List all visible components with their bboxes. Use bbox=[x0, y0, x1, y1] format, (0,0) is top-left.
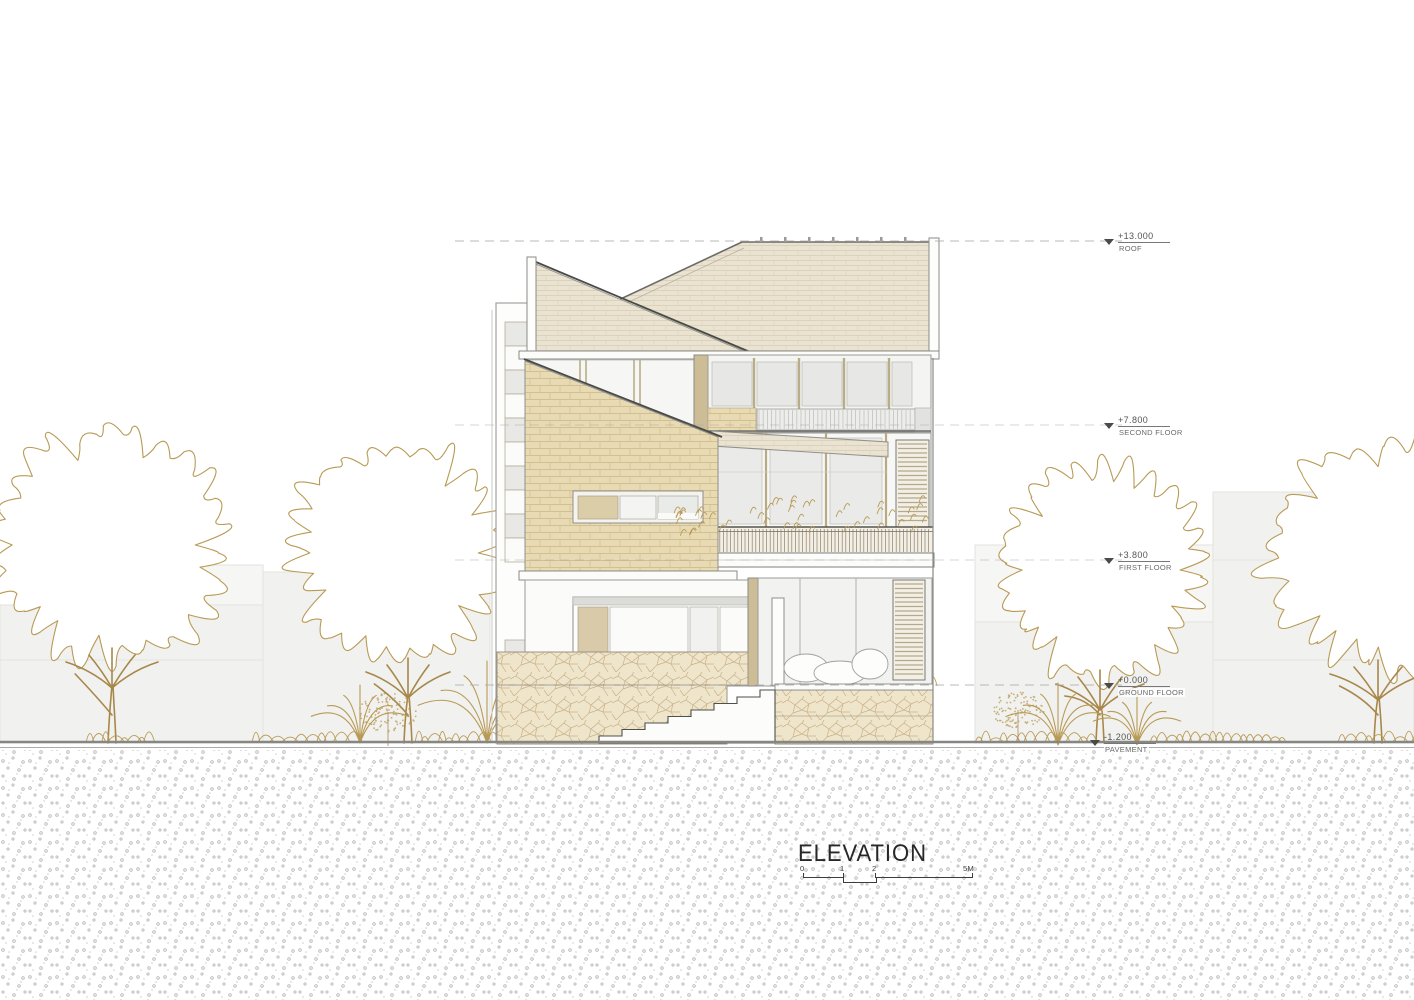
brick-window bbox=[573, 491, 703, 523]
level-value: +0.000 bbox=[1118, 675, 1170, 687]
level-marker-roof: +13.000 ROOF bbox=[1104, 231, 1194, 255]
first-floor-glazing bbox=[708, 431, 931, 528]
level-triangle-icon bbox=[1104, 239, 1114, 245]
level-marker-first-floor: +3.800 FIRST FLOOR bbox=[1104, 550, 1194, 574]
level-triangle-icon bbox=[1090, 740, 1100, 746]
elevation-sheet: +13.000 ROOF +7.800 SECOND FLOOR +3.800 … bbox=[0, 0, 1414, 1000]
level-marker-ground-floor: +0.000 GROUND FLOOR bbox=[1104, 675, 1194, 699]
clerestory-band bbox=[708, 355, 931, 432]
house-elevation bbox=[492, 237, 939, 744]
level-name: GROUND FLOOR bbox=[1118, 688, 1185, 697]
louver-screen-lower bbox=[893, 580, 925, 680]
level-triangle-icon bbox=[1104, 558, 1114, 564]
scale-bar-segment bbox=[875, 877, 972, 878]
pavement-stipple bbox=[0, 750, 1414, 1000]
level-name: PAVEMENT bbox=[1104, 745, 1149, 754]
balcony bbox=[686, 527, 934, 567]
level-triangle-icon bbox=[1104, 423, 1114, 429]
scale-tick-1: 1 bbox=[840, 864, 844, 873]
scale-bar-segment bbox=[803, 877, 843, 878]
scale-tick-0: 0 bbox=[800, 864, 804, 873]
ground-window bbox=[573, 597, 757, 657]
scale-bar-segment-drop bbox=[843, 877, 877, 883]
scale-tick-5m: 5M bbox=[963, 864, 974, 873]
elevation-drawing bbox=[0, 0, 1414, 1000]
level-value: -1.200 bbox=[1104, 732, 1156, 744]
scale-tick-2: 2 bbox=[872, 864, 876, 873]
level-name: SECOND FLOOR bbox=[1118, 428, 1184, 437]
level-marker-pavement: -1.200 PAVEMENT bbox=[1090, 732, 1180, 756]
level-name: FIRST FLOOR bbox=[1118, 563, 1173, 572]
level-marker-second-floor: +7.800 SECOND FLOOR bbox=[1104, 415, 1194, 439]
level-value: +3.800 bbox=[1118, 550, 1170, 562]
level-value: +7.800 bbox=[1118, 415, 1170, 427]
title-block: ELEVATION 0 1 2 5M bbox=[798, 840, 1018, 868]
level-triangle-icon bbox=[1104, 683, 1114, 689]
ground-and-pavement bbox=[0, 742, 1414, 1000]
level-value: +13.000 bbox=[1118, 231, 1170, 243]
level-name: ROOF bbox=[1118, 244, 1143, 253]
